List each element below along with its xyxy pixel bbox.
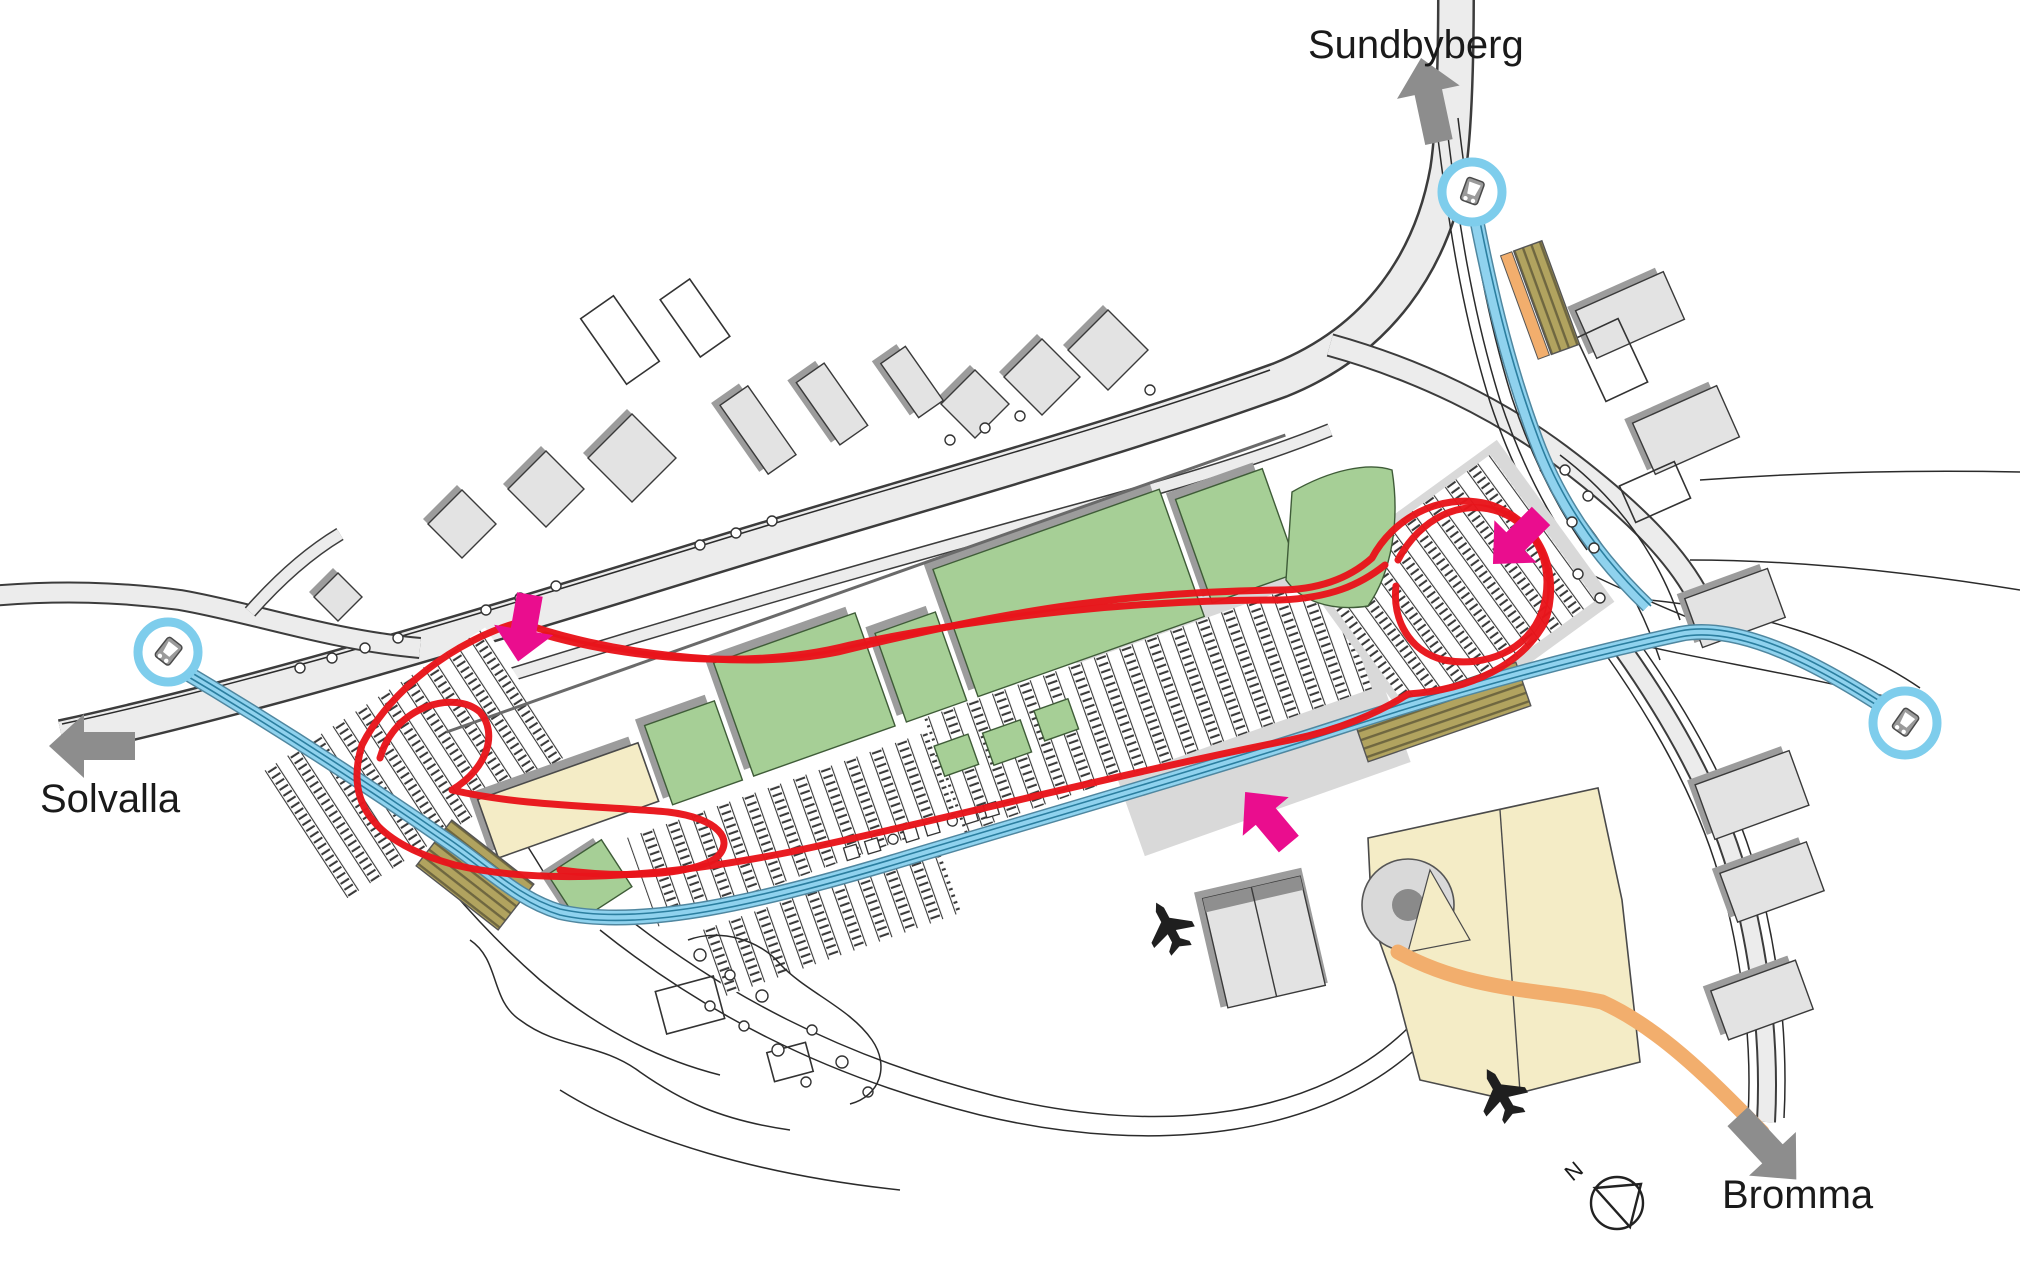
- hangar-buildings: [1194, 868, 1328, 1010]
- label-solvalla: Solvalla: [40, 777, 181, 821]
- airplane-icon-1: [1136, 892, 1202, 961]
- beige-building-southeast: [1362, 788, 1640, 1098]
- bus-stop-icon-east: [1873, 691, 1937, 755]
- bus-stop-icon-west: [138, 622, 198, 682]
- site-plan-map: N Sundbyberg Solvalla Bromma: [0, 0, 2020, 1262]
- site-plan-canvas: N Sundbyberg Solvalla Bromma: [0, 0, 2020, 1262]
- compass-icon: N: [1560, 1156, 1643, 1229]
- compass-north-label: N: [1560, 1156, 1588, 1185]
- label-sundbyberg: Sundbyberg: [1308, 23, 1524, 67]
- label-bromma: Bromma: [1722, 1173, 1874, 1217]
- bus-stop-icon-north: [1442, 162, 1502, 222]
